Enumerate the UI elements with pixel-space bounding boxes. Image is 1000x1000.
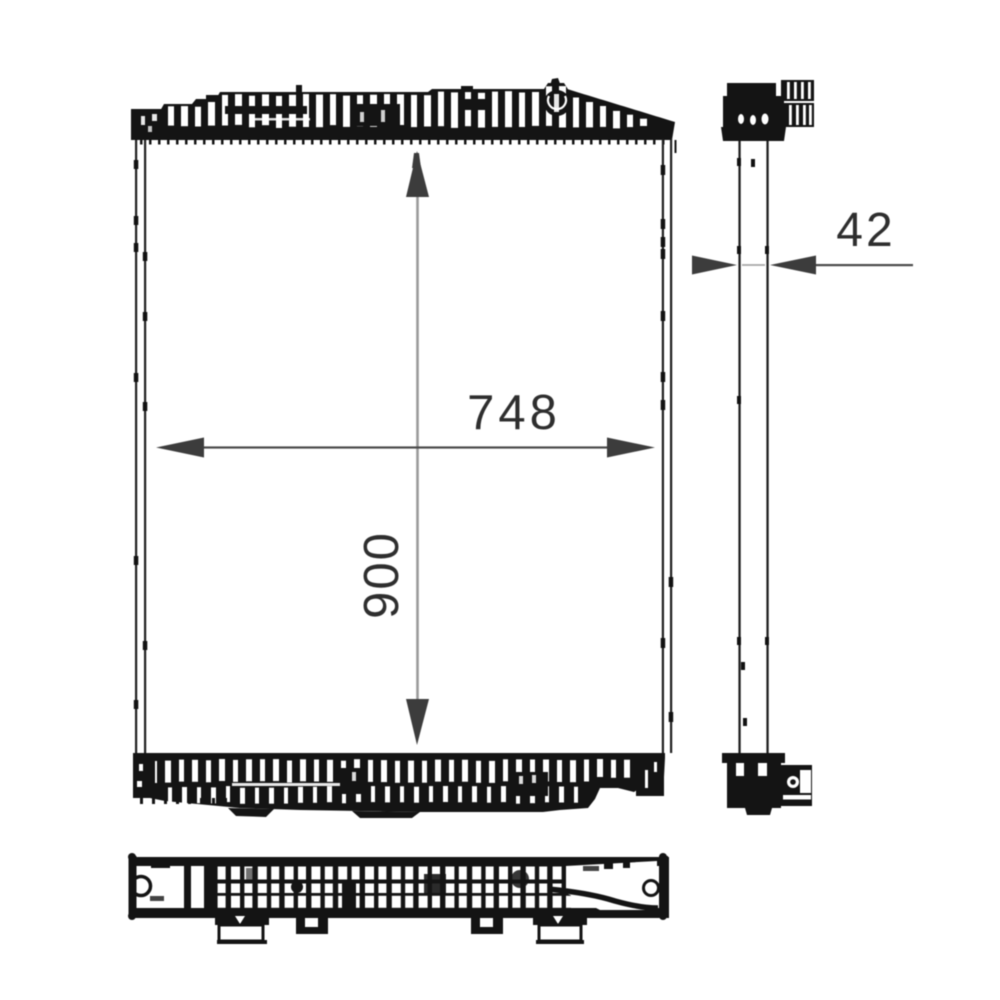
svg-text:42: 42 [836, 204, 895, 257]
svg-text:900: 900 [355, 531, 409, 619]
svg-text:748: 748 [467, 386, 561, 440]
